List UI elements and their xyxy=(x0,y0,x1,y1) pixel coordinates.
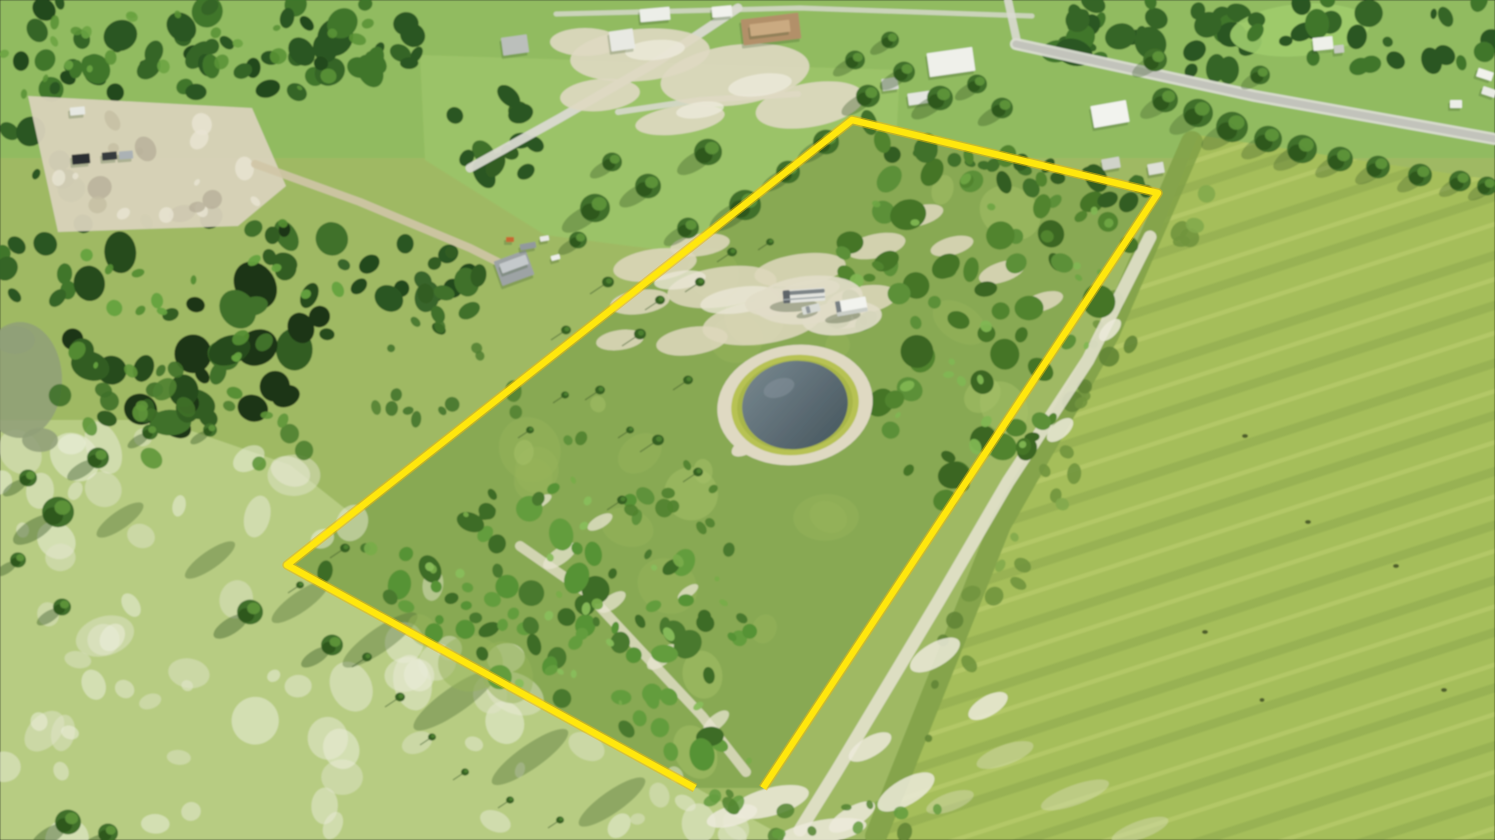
photo-layers xyxy=(0,0,1495,840)
haze-overlay xyxy=(0,0,1495,840)
aerial-photo xyxy=(0,0,1495,840)
aerial-photo-canvas xyxy=(0,0,1495,840)
